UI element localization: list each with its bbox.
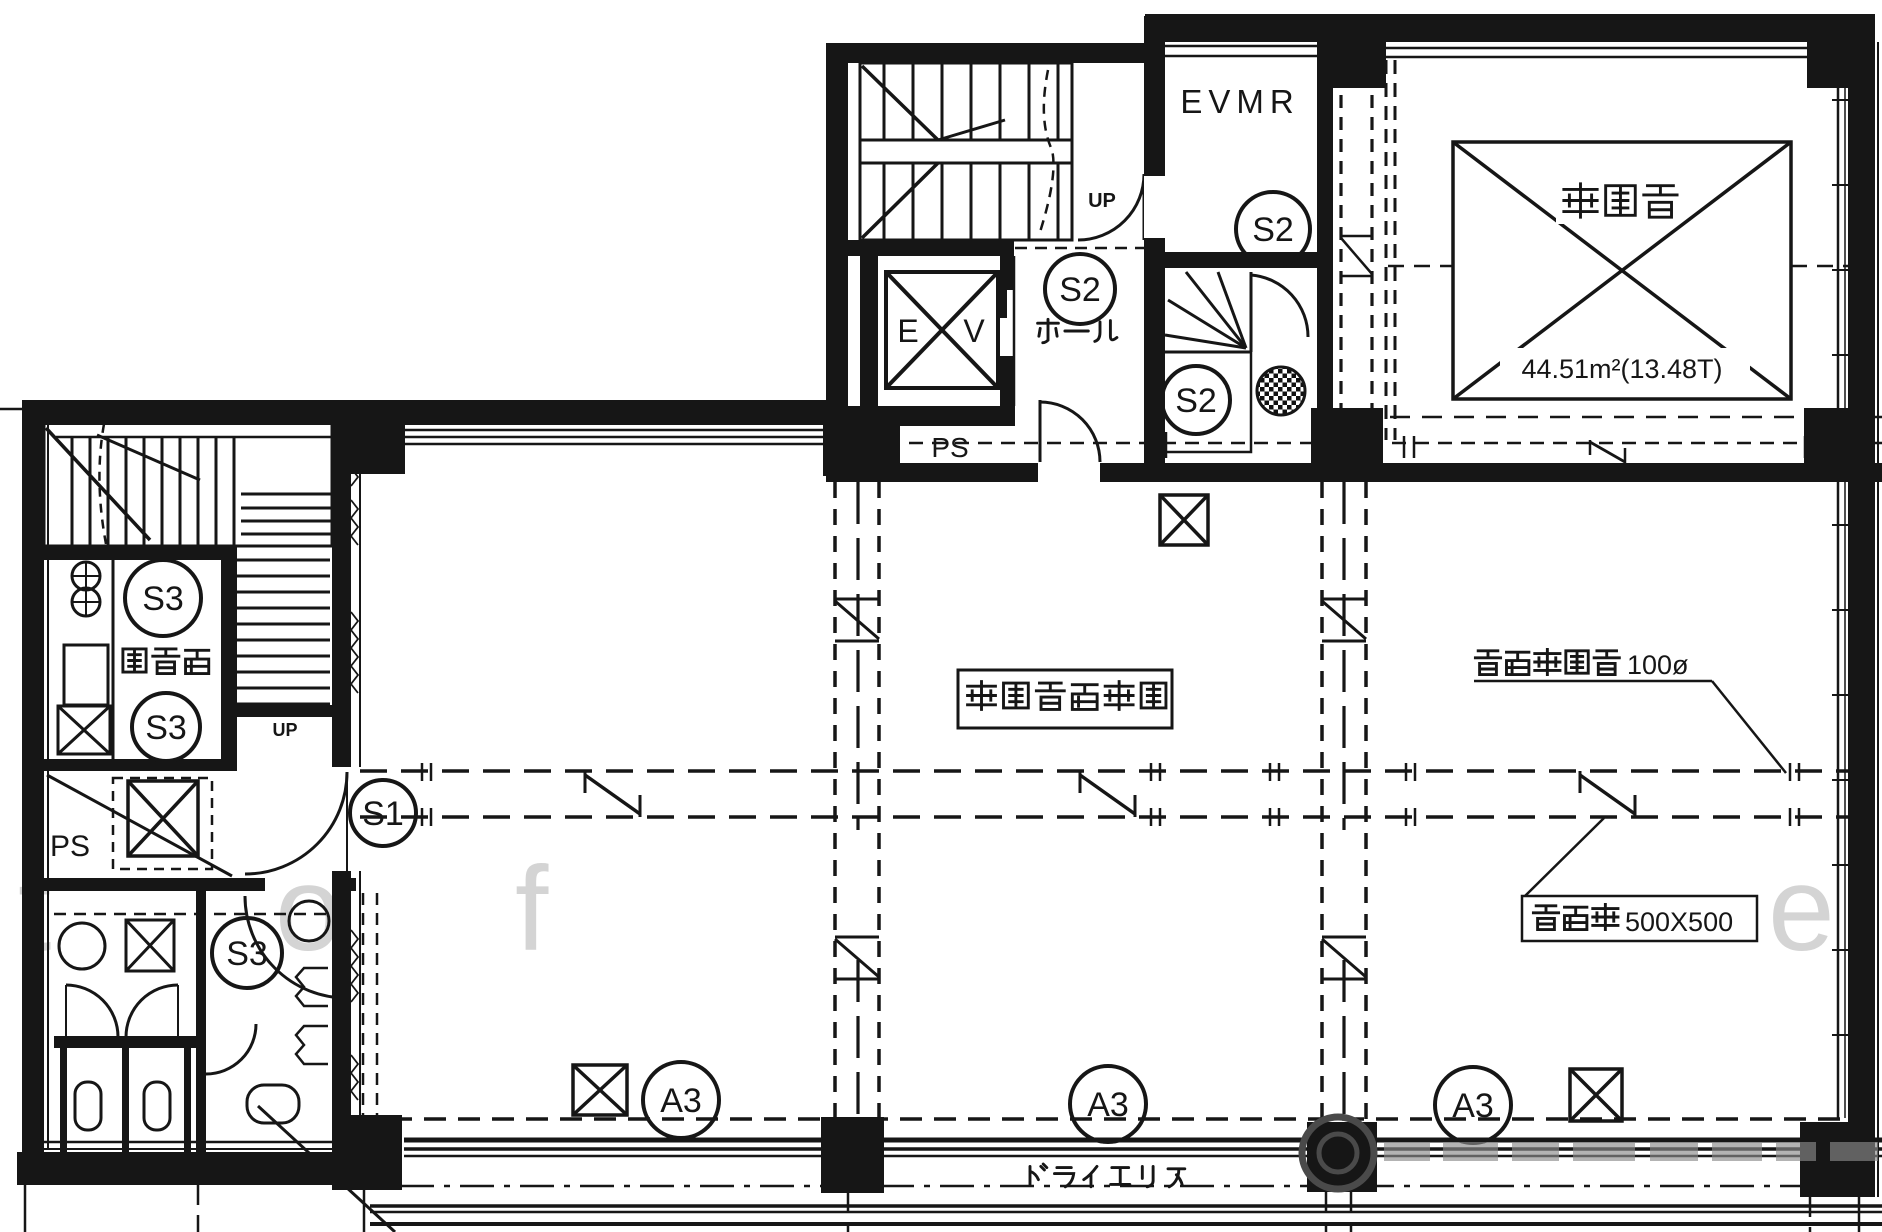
svg-text:PS: PS [931, 432, 968, 463]
svg-text:f: f [515, 842, 549, 976]
svg-text:PS: PS [50, 830, 90, 863]
svg-text:S3: S3 [145, 709, 187, 747]
svg-text:100ø: 100ø [1627, 650, 1689, 680]
svg-text:A3: A3 [1452, 1087, 1494, 1125]
svg-text:V: V [963, 313, 985, 349]
svg-text:S2: S2 [1252, 211, 1294, 249]
svg-text:S3: S3 [142, 580, 184, 618]
svg-text:o: o [275, 842, 342, 976]
svg-text:UP: UP [1088, 190, 1116, 212]
svg-text:44.51m²(13.48T): 44.51m²(13.48T) [1521, 354, 1722, 384]
svg-text:S1: S1 [362, 795, 404, 833]
svg-text:EVMR: EVMR [1180, 83, 1299, 120]
svg-text:e: e [1768, 842, 1835, 976]
svg-text:S2: S2 [1059, 271, 1101, 309]
svg-text:S2: S2 [1175, 382, 1217, 420]
svg-text:A3: A3 [1087, 1086, 1129, 1124]
svg-text:S3: S3 [226, 935, 268, 973]
svg-text:E: E [897, 313, 918, 349]
svg-text:UP: UP [272, 720, 297, 740]
svg-text:500X500: 500X500 [1625, 907, 1733, 937]
svg-text:A3: A3 [660, 1082, 702, 1120]
